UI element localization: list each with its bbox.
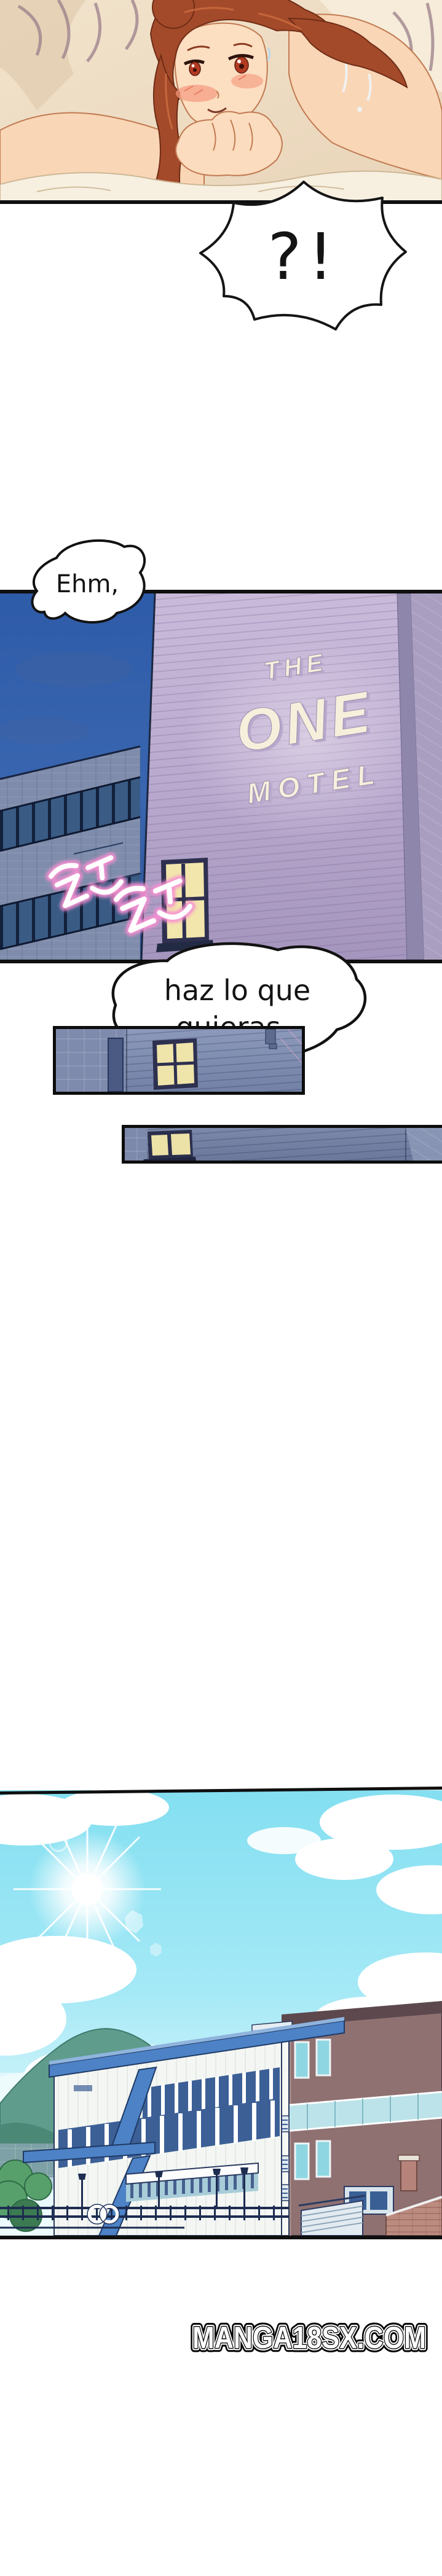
sun xyxy=(14,1815,162,1963)
bubble-text-line1: haz lo que xyxy=(164,974,310,1007)
panel-window-strip1 xyxy=(53,1026,305,1095)
panel-border xyxy=(122,1125,442,1128)
panel-window-strip2 xyxy=(122,1125,442,1164)
speech-bubble-ehm: Ehm, xyxy=(16,533,154,629)
pipe xyxy=(266,1029,275,1044)
watermark: MANGA18SX.COM MANGA18SX.COM MANGA18SX.CO… xyxy=(184,2310,434,2368)
speech-bubble-exclaim: ?! xyxy=(194,179,408,331)
bubble-text: Ehm, xyxy=(56,570,119,598)
panel-bedroom xyxy=(0,0,442,204)
panel-school-day xyxy=(0,1784,442,2241)
lit-window xyxy=(152,1038,198,1090)
watermark-text: MANGA18SX.COM xyxy=(192,2320,426,2355)
brick-pillar xyxy=(401,2160,417,2191)
door xyxy=(108,1038,123,1092)
panel-motel-night: THE ONE MOTEL THE ONE MOTEL xyxy=(0,590,442,963)
panel-border-bottom xyxy=(0,2236,442,2239)
bubble-text: ?! xyxy=(268,219,340,294)
lit-window xyxy=(143,1130,196,1161)
webtoon-page: ?! THE xyxy=(0,0,442,2576)
left-building xyxy=(0,746,141,960)
